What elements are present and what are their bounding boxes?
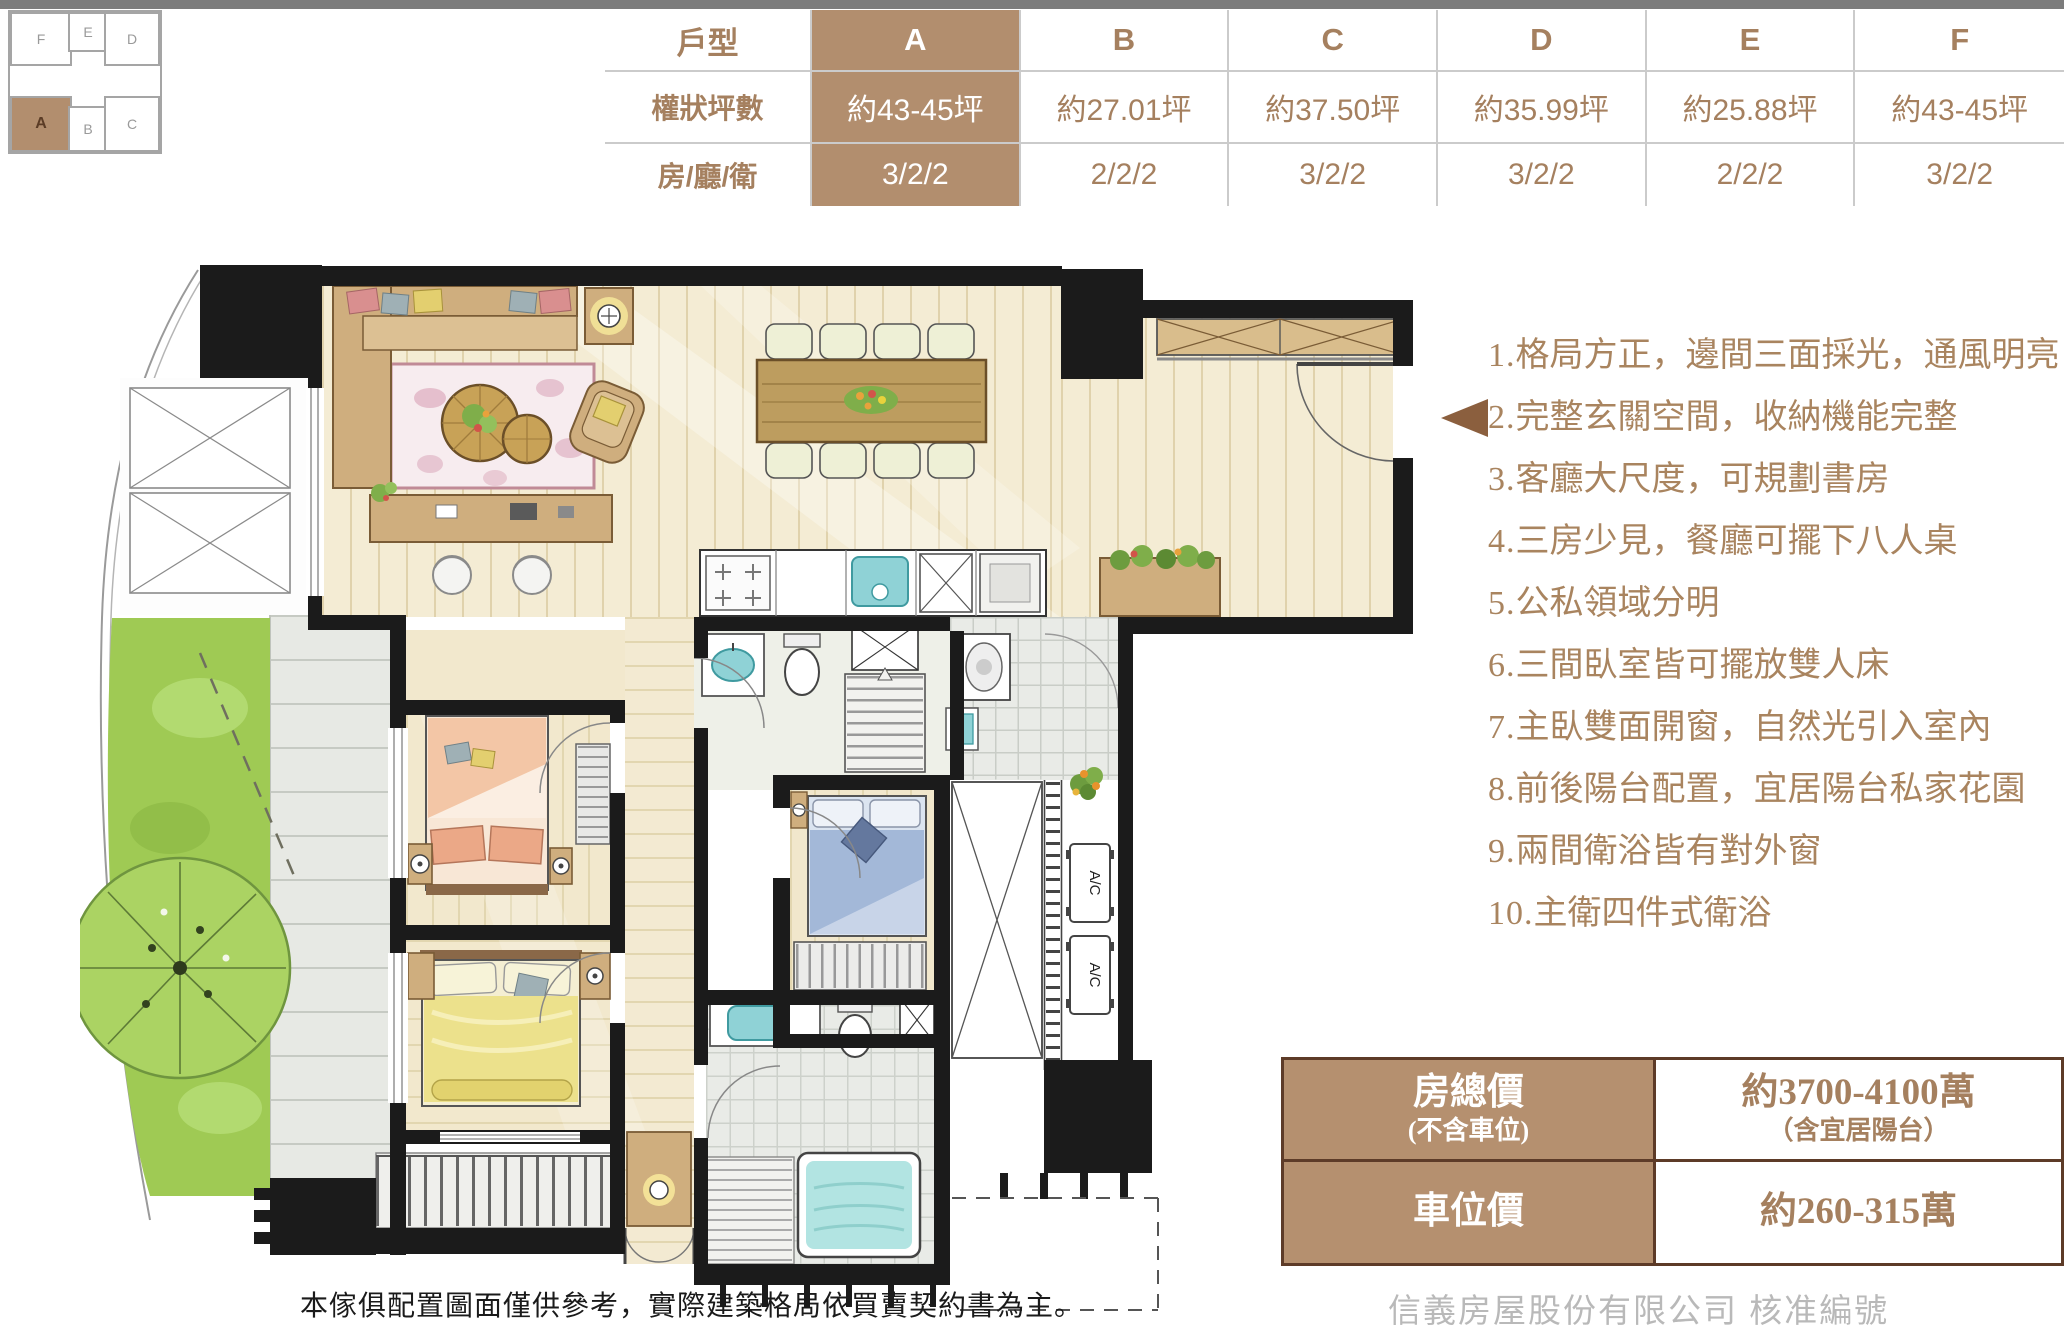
list-item: 4.三房少見，餐廳可擺下八人桌 [1488,511,2064,573]
spec-area-D: 約35.99坪 [1438,72,1647,144]
ac-unit: A/C [1066,936,1114,1014]
list-item: 8.前後陽台配置，宜居陽台私家花園 [1488,759,2064,821]
item-number: 5. [1488,585,1516,622]
spec-area-C: 約37.50坪 [1229,72,1438,144]
unit-cell-A: A [10,96,72,152]
top-gray-bar [0,0,2064,9]
spec-col-D: D [1438,10,1647,72]
floor-plan-container: A/C A/C [80,188,1480,1334]
item-text: 公私領域分明 [1516,585,1720,622]
spec-col-B: B [1021,10,1230,72]
spec-col-A: A [812,10,1021,72]
spec-area-B: 約27.01坪 [1021,72,1230,144]
spec-area-F: 約43-45坪 [1855,72,2064,144]
price-value-total: 約3700-4100萬 （含宜居陽台） [1656,1060,2061,1162]
company-watermark: 信義房屋股份有限公司 核准編號 3865200338 [1388,1284,2064,1334]
unit-cell-C: C [104,96,160,152]
item-number: 1. [1488,337,1516,374]
bedroom-3 [790,792,926,990]
list-item: 9.兩間衛浴皆有對外窗 [1488,821,2064,883]
unit-cell-E: E [68,12,108,52]
page: F E D A B C 戶型 A B C D E F 權狀坪數 約43-45坪 … [0,0,2064,1334]
item-text: 完整玄關空間，收納機能完整 [1516,399,1958,436]
unit-cell-D: D [104,12,160,66]
spec-area-E: 約25.88坪 [1647,72,1856,144]
item-number: 9. [1488,833,1516,870]
item-text: 三房少見，餐廳可擺下八人桌 [1516,523,1958,560]
living-room [333,286,649,488]
list-item: 1.格局方正，邊間三面採光，通風明亮 [1488,325,2064,387]
item-number: 2. [1488,399,1516,436]
price-value-main: 約260-315萬 [1760,1190,1957,1234]
list-item: 6.三間臥室皆可擺放雙人床 [1488,635,2064,697]
spec-header-label: 戶型 [605,10,812,72]
item-number: 4. [1488,523,1516,560]
price-value-main: 約3700-4100萬 [1741,1071,1975,1115]
list-item: 2.完整玄關空間，收納機能完整 [1488,387,2064,449]
spec-col-E: E [1647,10,1856,72]
spec-row-area-label: 權狀坪數 [605,72,812,144]
list-item: 10.主衛四件式衛浴 [1488,883,2064,945]
item-number: 6. [1488,647,1516,684]
item-text: 主臥雙面開窗，自然光引入室內 [1516,709,1992,746]
unit-cell-B: B [68,106,108,152]
item-number: 10. [1488,895,1534,932]
unit-cell-F: F [10,12,72,66]
list-item: 3.客廳大尺度，可規劃書房 [1488,449,2064,511]
spec-col-C: C [1229,10,1438,72]
item-number: 3. [1488,461,1516,498]
item-text: 格局方正，邊間三面採光，通風明亮 [1516,337,2060,374]
item-text: 客廳大尺度，可規劃書房 [1516,461,1890,498]
kitchen [700,550,1046,616]
disclaimer-text: 本傢俱配置圖面僅供參考，實際建築格局依買賣契約書為主。 [300,1284,1083,1324]
ac-label: A/C [1086,962,1103,987]
item-number: 7. [1488,709,1516,746]
spec-area-A: 約43-45坪 [812,72,1021,144]
list-item: 7.主臥雙面開窗，自然光引入室內 [1488,697,2064,759]
ac-unit: A/C [1066,844,1114,922]
item-text: 兩間衛浴皆有對外窗 [1516,833,1822,870]
floor-plan: A/C A/C [80,188,1480,1334]
item-text: 主衛四件式衛浴 [1534,895,1772,932]
spec-layout-E: 2/2/2 [1647,144,1856,206]
spec-col-F: F [1855,10,2064,72]
unit-spec-table: 戶型 A B C D E F 權狀坪數 約43-45坪 約27.01坪 約37.… [605,10,2064,206]
unit-location-diagram: F E D A B C [8,10,170,156]
spec-layout-F: 3/2/2 [1855,144,2064,206]
price-value-note: （含宜居陽台） [1767,1115,1949,1147]
bedroom-2 [408,950,610,1106]
price-value-parking: 約260-315萬 [1656,1162,2061,1264]
item-text: 三間臥室皆可擺放雙人床 [1516,647,1890,684]
item-number: 8. [1488,771,1516,808]
bottom-balcony [376,1153,618,1228]
ac-label: A/C [1086,870,1103,895]
list-item: 5.公私領域分明 [1488,573,2064,635]
selling-points-list: 1.格局方正，邊間三面採光，通風明亮 2.完整玄關空間，收納機能完整 3.客廳大… [1488,325,2064,945]
item-text: 前後陽台配置，宜居陽台私家花園 [1516,771,2026,808]
